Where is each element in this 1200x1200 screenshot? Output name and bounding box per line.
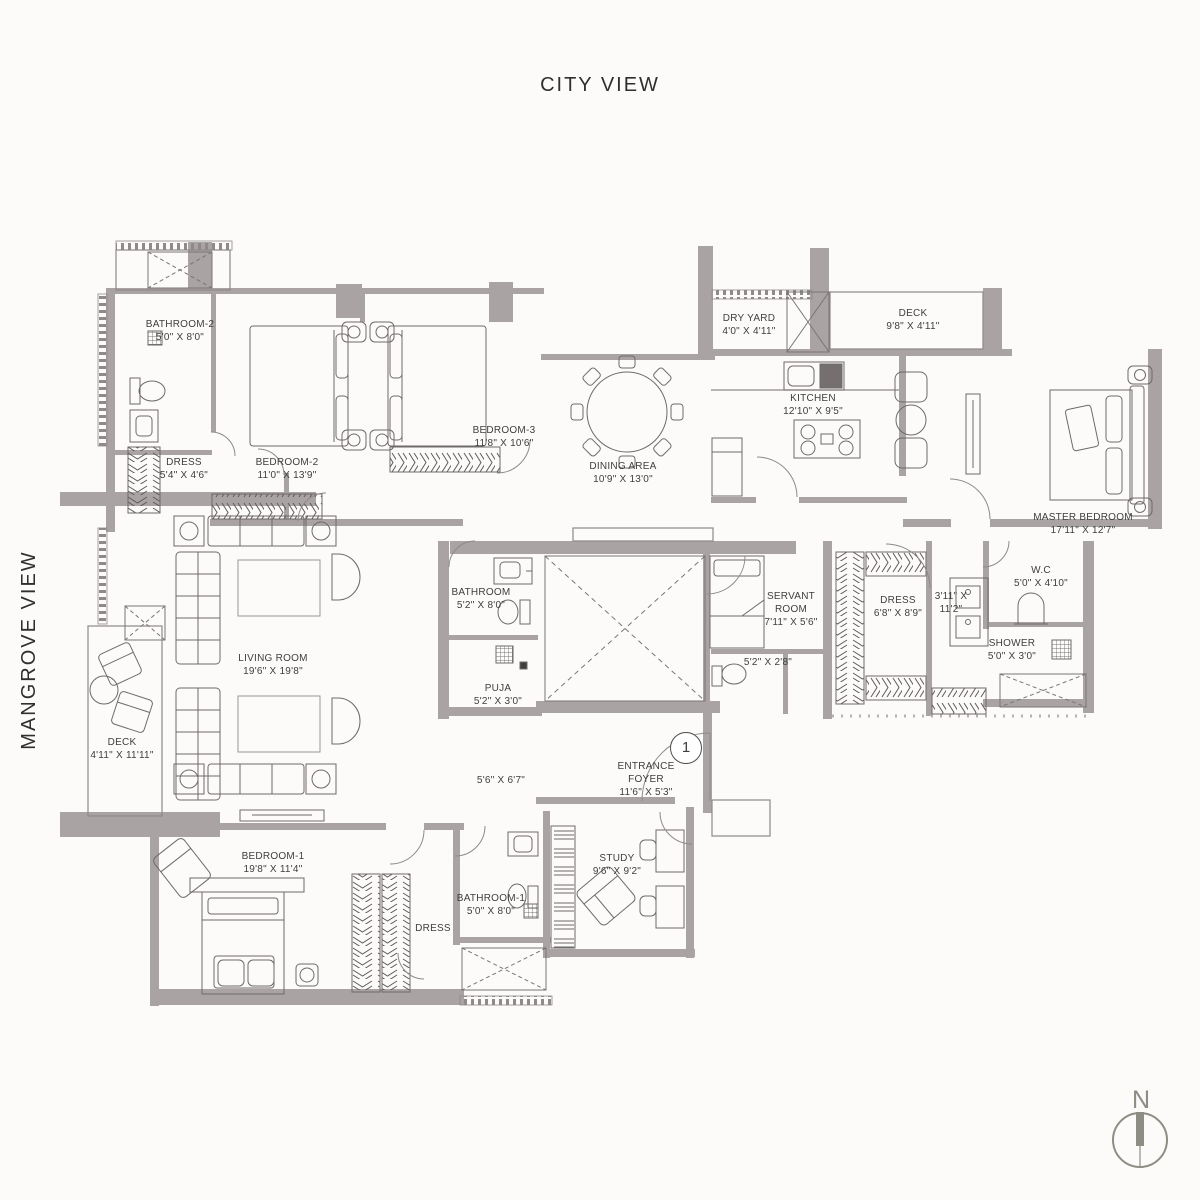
room-label-master-bedroom: MASTER BEDROOM 17'11" X 12'7" (1033, 511, 1133, 537)
shaft-boxes (125, 252, 1086, 990)
lift-lobby-shaft-icon (545, 556, 705, 701)
room-label-bathroom-1: BATHROOM-1 5'0" X 8'0" (457, 892, 525, 918)
room-label-living-room: LIVING ROOM 19'6" X 19'8" (238, 652, 307, 678)
wardrobe-icon (866, 552, 926, 576)
deck-table-icon (90, 676, 118, 704)
nightstand-icon (342, 322, 394, 450)
armchair-d-icon (332, 554, 360, 600)
washbasin-icon (494, 558, 532, 584)
room-label-servant-room: SERVANT ROOM 7'11" X 5'6" (754, 590, 828, 630)
tile-grid-icon (524, 904, 538, 918)
walls (60, 242, 1162, 1006)
mangrove-view-label: MANGROVE VIEW (18, 540, 42, 760)
washbasin-icon (508, 832, 538, 856)
dims-label-foyer-passage: 5'6" X 6'7" (477, 774, 525, 787)
single-bed-icon (250, 326, 348, 446)
hob-icon (794, 420, 860, 458)
wardrobe-icon (212, 494, 322, 519)
bathroom1-shaft-icon (462, 948, 546, 990)
room-label-deck-top: DECK 9'8" X 4'11" (886, 307, 939, 333)
wardrobe-icon (128, 447, 160, 513)
deck-shaft-icon (125, 606, 165, 640)
deck-chair-icon (97, 641, 142, 686)
room-label-puja: PUJA 5'2" X 3'0" (474, 682, 522, 708)
double-bed-icon (1050, 366, 1152, 516)
wardrobe-icon (836, 552, 864, 704)
wardrobe-icon (866, 676, 926, 700)
study-desk-icon (640, 830, 684, 928)
room-label-wc: W.C 5'0" X 4'10" (1014, 564, 1068, 590)
wardrobe-icon (932, 688, 986, 714)
shower-grid-icon (1052, 640, 1071, 659)
room-label-dress-1: DRESS (415, 922, 451, 935)
dining-table-icon (571, 356, 683, 468)
wardrobe-icon (382, 874, 410, 992)
room-label-deck-left: DECK 4'11" X 11'11" (90, 736, 153, 762)
refrigerator-icon (712, 438, 742, 496)
single-bed-icon (388, 326, 486, 446)
room-label-study: STUDY 9'6" X 9'2" (593, 852, 641, 878)
washbasin-icon (130, 410, 158, 442)
floor-plan-drawing (0, 0, 1200, 1200)
dims-label-passage: 3'11" X 11'2" (932, 590, 970, 616)
city-view-label: CITY VIEW (0, 74, 1200, 97)
armchair-d-icon (332, 698, 360, 744)
room-label-dress-master: DRESS 6'8" X 8'9" (874, 594, 922, 620)
double-bed-icon (190, 878, 318, 994)
chaise-icon (176, 552, 220, 800)
floor-drain-icon (496, 646, 513, 663)
toilet-icon (1014, 593, 1048, 624)
kitchen-sink-icon (784, 362, 844, 390)
compass-north-label: N (1126, 1086, 1156, 1115)
room-label-bathroom-center: BATHROOM 5'2" X 8'0" (451, 586, 510, 612)
room-label-bedroom-1: BEDROOM-1 19'8" X 11'4" (242, 850, 305, 876)
toilet-icon (712, 664, 746, 686)
toilet-icon (130, 378, 165, 404)
bookshelf-icon (551, 826, 575, 948)
drain-icon (520, 662, 527, 669)
deck-chair-icon (111, 691, 154, 734)
wardrobe-icon (390, 447, 500, 472)
room-label-bedroom-3: BEDROOM-3 11'8" X 10'6" (473, 424, 536, 450)
room-label-kitchen: KITCHEN 12'10" X 9'5" (783, 392, 843, 418)
lounge-chair-icon (152, 837, 213, 900)
dims-label-servant-wc: 5'2" X 2'8" (744, 656, 792, 669)
north-compass-icon (1113, 1112, 1167, 1168)
room-label-dining-area: DINING AREA 10'9" X 13'0" (589, 460, 656, 486)
wardrobe-icon (352, 874, 380, 992)
room-label-dress-2: DRESS 5'4" X 4'6" (160, 456, 208, 482)
room-label-shower: SHOWER 5'0" X 3'0" (988, 637, 1036, 663)
tv-unit-icon (966, 394, 980, 474)
room-label-bedroom-2: BEDROOM-2 11'0" X 13'9" (256, 456, 319, 482)
room-label-entrance-foyer: ENTRANCE FOYER 11'6" X 5'3" (603, 760, 689, 800)
tv-console-icon (240, 810, 324, 821)
room-label-dry-yard: DRY YARD 4'0" X 4'11" (722, 312, 775, 338)
room-label-bathroom-2: BATHROOM-2 5'0" X 8'0" (146, 318, 214, 344)
